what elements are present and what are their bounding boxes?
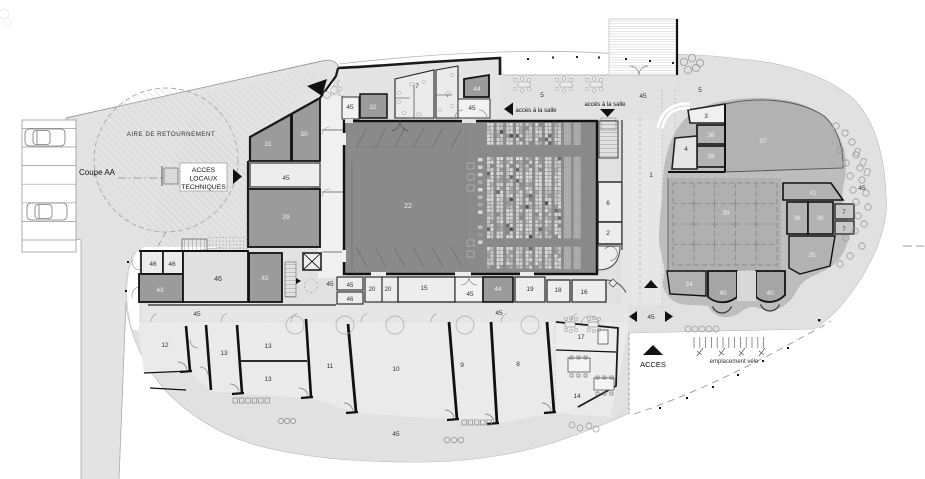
svg-text:11: 11 <box>327 363 334 370</box>
svg-text:38: 38 <box>707 153 715 160</box>
svg-text:45: 45 <box>639 93 647 100</box>
svg-text:38: 38 <box>707 132 715 139</box>
svg-text:40: 40 <box>719 290 727 297</box>
svg-text:30: 30 <box>300 131 308 138</box>
svg-text:20: 20 <box>385 287 392 293</box>
svg-text:22: 22 <box>404 203 412 210</box>
svg-text:13: 13 <box>264 343 272 350</box>
svg-text:45: 45 <box>346 104 354 111</box>
svg-text:accès à la salle: accès à la salle <box>584 102 626 108</box>
svg-text:ACCES: ACCES <box>192 167 216 174</box>
svg-text:41: 41 <box>809 190 817 197</box>
svg-text:Coupe AA: Coupe AA <box>79 168 116 177</box>
svg-text:45: 45 <box>392 431 400 438</box>
svg-text:31: 31 <box>264 141 272 148</box>
svg-text:45: 45 <box>858 185 866 192</box>
svg-text:2: 2 <box>606 230 610 237</box>
svg-text:17: 17 <box>577 334 585 341</box>
svg-text:45: 45 <box>647 314 655 321</box>
svg-text:35: 35 <box>808 252 816 259</box>
svg-text:45: 45 <box>466 291 474 298</box>
svg-text:10: 10 <box>392 366 400 373</box>
svg-text:37: 37 <box>759 138 767 145</box>
svg-text:3: 3 <box>704 113 708 120</box>
svg-text:46: 46 <box>214 276 222 283</box>
svg-text:13: 13 <box>220 350 228 357</box>
svg-text:20: 20 <box>369 287 376 293</box>
svg-text:45: 45 <box>326 281 334 288</box>
svg-text:accès à la salle: accès à la salle <box>515 108 557 114</box>
svg-text:13: 13 <box>264 376 272 383</box>
svg-text:44: 44 <box>473 86 481 93</box>
svg-text:44: 44 <box>494 286 502 293</box>
svg-text:16: 16 <box>580 289 588 296</box>
svg-text:42: 42 <box>261 275 269 282</box>
svg-text:32: 32 <box>369 104 377 111</box>
svg-text:12: 12 <box>161 342 169 349</box>
svg-text:8: 8 <box>516 361 520 368</box>
svg-text:5: 5 <box>540 92 544 99</box>
svg-text:7: 7 <box>415 83 419 90</box>
svg-text:46: 46 <box>149 261 157 268</box>
svg-text:46: 46 <box>347 297 354 303</box>
svg-text:ACCES: ACCES <box>640 360 666 369</box>
svg-text:29: 29 <box>282 214 290 221</box>
svg-text:40: 40 <box>766 290 774 297</box>
svg-text:45: 45 <box>347 283 354 289</box>
svg-text:AIRE DE RETOURNEMENT: AIRE DE RETOURNEMENT <box>127 131 216 138</box>
svg-text:emplacement vélo: emplacement vélo <box>710 359 759 365</box>
svg-text:46: 46 <box>168 261 176 268</box>
svg-text:19: 19 <box>526 286 534 293</box>
svg-text:45: 45 <box>193 311 201 318</box>
svg-text:1: 1 <box>649 172 653 179</box>
svg-text:36: 36 <box>816 215 824 222</box>
svg-text:15: 15 <box>420 285 428 292</box>
svg-text:TECHNIQUES: TECHNIQUES <box>181 184 226 191</box>
svg-text:43: 43 <box>156 287 164 294</box>
svg-text:36: 36 <box>793 215 801 222</box>
svg-text:LOCAUX: LOCAUX <box>190 176 218 183</box>
svg-text:34: 34 <box>685 281 693 288</box>
svg-text:45: 45 <box>282 175 290 182</box>
svg-text:4: 4 <box>684 146 688 153</box>
svg-text:14: 14 <box>573 393 581 400</box>
svg-text:6: 6 <box>606 200 610 207</box>
svg-text:45: 45 <box>468 105 476 112</box>
svg-text:18: 18 <box>554 287 562 294</box>
svg-text:45: 45 <box>495 310 503 317</box>
svg-text:5: 5 <box>698 87 702 94</box>
svg-text:39: 39 <box>722 210 730 217</box>
svg-text:9: 9 <box>460 362 464 369</box>
